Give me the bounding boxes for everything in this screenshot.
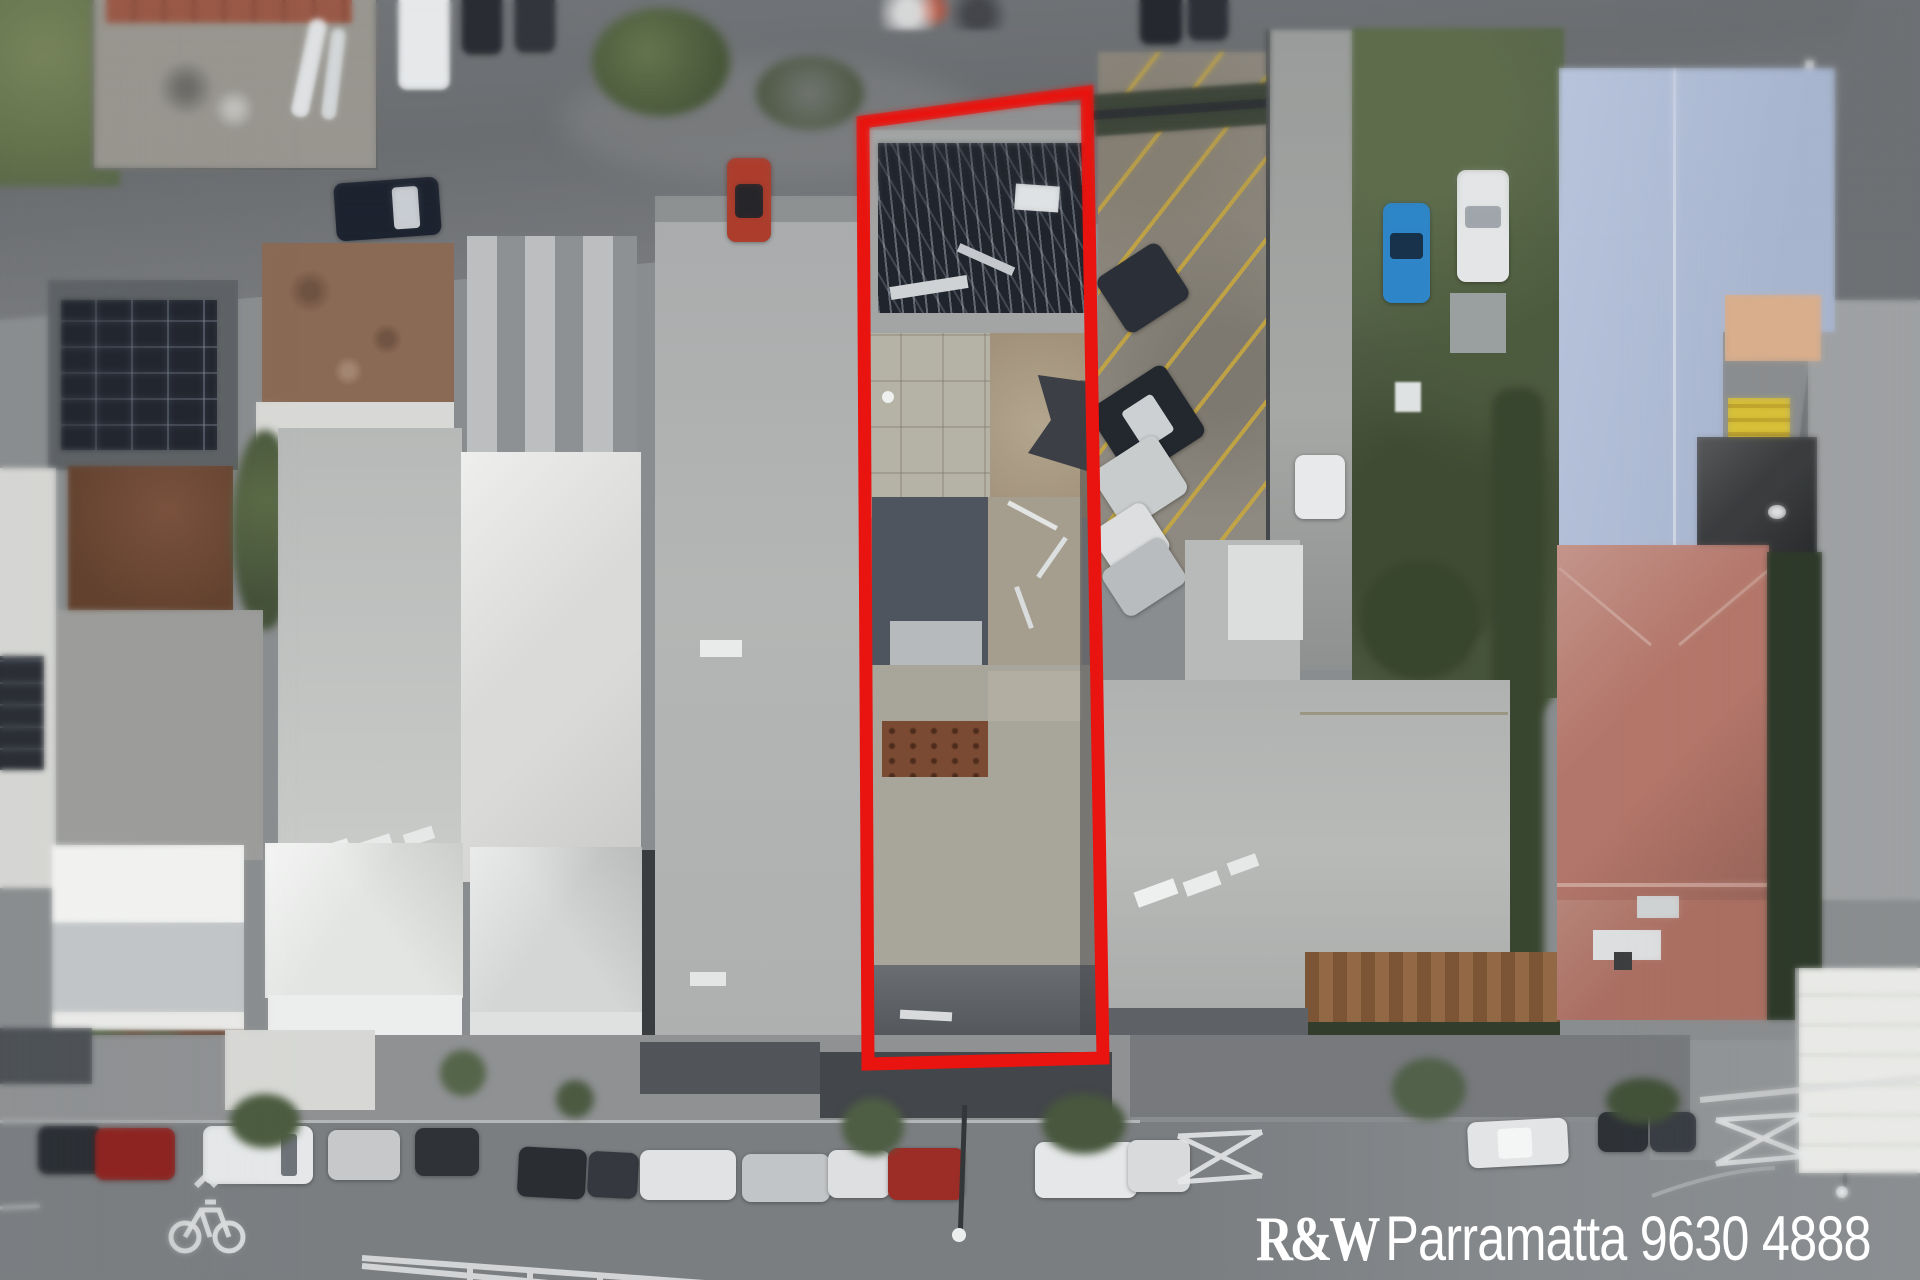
street-pole-2-lamp [1836,1186,1848,1198]
salmon-hip-roof [1557,545,1769,905]
long-grey-roof [655,200,862,1070]
terrace-house-3-veranda [470,1012,642,1036]
right-dark-yard [1767,552,1822,1020]
tree-top-center [592,8,730,116]
street-car-dark-1 [38,1126,102,1174]
parked-dark-car-top-4 [1188,0,1228,40]
salmon-roof-lower [1557,900,1769,1020]
white-van-in-lane [1295,455,1345,519]
white-car-garden [1457,170,1509,282]
garden-white-item [1395,382,1421,412]
blue-roof-seam [1673,68,1676,554]
warehouse-roof-seam [1300,712,1508,715]
garden-tree-1 [1360,560,1480,680]
street-car-white-4 [1128,1140,1190,1192]
curb-line [0,1120,1140,1123]
street-car-silver-2 [742,1154,830,1202]
street-car-dark-3 [517,1146,588,1199]
parked-white-van-top [398,0,450,90]
white-corner-building [1795,968,1920,1173]
terrace-house-2-roof [265,843,463,998]
street-car-white-2 [828,1150,890,1198]
blue-car-windshield [1390,233,1423,259]
warehouse-shed-white [1228,545,1303,640]
street-pole-1-lamp [952,1228,966,1242]
solar-panel-array [61,300,217,450]
salmon-ridge-d2 [1678,567,1772,646]
concrete-yard-pavers [860,333,1005,518]
right-driveway [1808,300,1920,900]
rust-panel [882,721,988,777]
long-roof-vent-2 [690,972,726,986]
street-tree-5 [1042,1094,1126,1154]
watermark: R&W Parramatta 9630 4888 [1256,1202,1871,1276]
navy-car-on-road [333,176,442,241]
dark-hip-roof [1697,437,1817,557]
striped-roof [467,236,637,462]
awning-dark-mid [640,1042,820,1094]
terrace-house-3-roof [470,847,642,1037]
street-tree-4 [842,1098,904,1156]
parked-dark-car-top-1 [462,0,502,54]
salmon-chimney [1614,952,1632,970]
street-car-white-1 [640,1150,736,1200]
street-tree-2 [440,1050,486,1096]
blue-hatchback [1383,203,1430,303]
street-car-dark-2 [415,1128,479,1176]
street-car-dark-4 [587,1151,639,1200]
watermark-office-phone: Parramatta 9630 4888 [1385,1203,1871,1275]
rust-courtyard [68,466,233,614]
street-car-red-1 [95,1128,175,1180]
pale-long-roof [278,428,462,870]
dark-roof-light-patch [890,621,982,667]
salmon-ac-unit-2 [1637,896,1679,918]
watermark-phone: 9630 4888 [1640,1204,1871,1274]
white-big-hip-roof [461,452,641,882]
salmon-ridge-h [1557,883,1769,887]
street-car-white-right [1467,1117,1569,1168]
grey-yard [58,610,263,860]
street-tree-6 [1392,1058,1466,1120]
street-car-silver-1 [328,1130,400,1180]
left-house-solar-strip [0,656,44,770]
parked-dark-car-top-2 [515,0,555,52]
garden-shed [1450,293,1506,353]
red-car-beside-lot [727,158,771,242]
red-car-roof [735,184,763,218]
timber-pergola [1305,952,1560,1030]
navy-car-windshield [392,186,421,230]
white-car-windshield [1465,206,1501,228]
street-tree-7 [1606,1078,1680,1124]
dark-roof-vent [1768,505,1786,519]
street-tree-3 [556,1080,594,1118]
street-tree-1 [230,1094,300,1148]
salmon-ridge-d1 [1558,567,1652,646]
hedge-above-long-roof [756,56,864,130]
road-top-clutter [880,0,1020,30]
aerial-photo-scene: R&W Parramatta 9630 4888 [0,0,1920,1280]
yard-white-ball [882,391,894,403]
outlined-property [860,85,1110,1075]
parked-dark-car-top-3 [1140,0,1182,44]
terrace-house-1-roof [52,845,244,1030]
watermark-office: Parramatta [1385,1204,1626,1274]
long-roof-vent-1 [700,640,742,657]
street-car-red-2 [888,1148,964,1200]
watermark-brand: R&W [1256,1202,1377,1276]
concrete-step-right [988,671,1082,721]
peach-building-gap [1725,295,1821,361]
gravel-brown-roof [262,243,454,403]
awning-dark-left [0,1028,92,1084]
yard-clutter [150,60,270,130]
pile-white-plank-1 [1014,183,1060,212]
car-roof-detail [1497,1127,1533,1159]
